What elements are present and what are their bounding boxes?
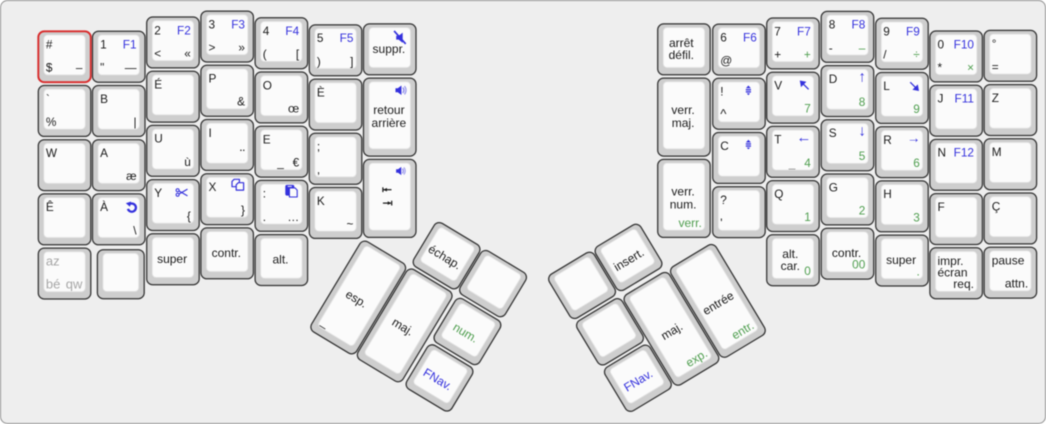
svg-text:6: 6 xyxy=(913,156,920,170)
svg-text:O: O xyxy=(263,78,272,92)
svg-text:00: 00 xyxy=(852,258,866,272)
svg-text:×: × xyxy=(967,60,974,74)
svg-text:—: — xyxy=(125,61,137,75)
svg-text:F: F xyxy=(938,200,945,214)
svg-text:alt.: alt. xyxy=(272,253,288,267)
svg-text:7: 7 xyxy=(774,24,781,38)
svg-text:S: S xyxy=(829,126,837,140)
svg-text:G: G xyxy=(829,180,838,194)
svg-text:verr.: verr. xyxy=(671,103,694,117)
svg-text:%: % xyxy=(46,115,57,129)
svg-text:1: 1 xyxy=(804,210,811,224)
svg-text:«: « xyxy=(184,46,191,60)
svg-text:super: super xyxy=(157,252,187,266)
svg-text:N: N xyxy=(938,146,947,160)
svg-text:_: _ xyxy=(788,156,796,170)
svg-text:bé: bé xyxy=(46,277,60,292)
svg-text:…: … xyxy=(287,210,299,224)
svg-text:F3: F3 xyxy=(231,17,245,31)
svg-text:.: . xyxy=(917,265,920,279)
svg-text:F7: F7 xyxy=(797,24,811,38)
svg-text:(: ( xyxy=(263,47,267,61)
svg-text:←: ← xyxy=(796,129,811,146)
svg-text:R: R xyxy=(883,133,892,147)
svg-text:*: * xyxy=(938,60,943,74)
svg-text:,: , xyxy=(317,163,320,177)
svg-text:F5: F5 xyxy=(340,31,354,45)
svg-text:M: M xyxy=(992,145,1002,159)
svg-text:=: = xyxy=(992,60,999,74)
svg-text:F1: F1 xyxy=(123,38,137,52)
svg-text:ù: ù xyxy=(184,155,191,169)
svg-text:F2: F2 xyxy=(177,23,191,37)
svg-text:#: # xyxy=(46,38,53,52)
svg-text:P: P xyxy=(209,72,217,86)
svg-text:}: } xyxy=(241,203,245,217)
svg-text:F9: F9 xyxy=(906,25,920,39)
svg-text:!: ! xyxy=(720,85,723,99)
svg-text:7: 7 xyxy=(804,102,811,116)
svg-text:3: 3 xyxy=(913,210,920,224)
svg-text:>: > xyxy=(209,41,216,55)
svg-text:B: B xyxy=(100,92,108,106)
svg-text:{: { xyxy=(187,209,191,223)
svg-text:5: 5 xyxy=(859,149,866,163)
svg-text:5: 5 xyxy=(317,31,324,45)
svg-text:2: 2 xyxy=(154,23,161,37)
svg-text:I: I xyxy=(209,126,212,140)
svg-text:F8: F8 xyxy=(852,18,866,32)
svg-text:-: - xyxy=(829,41,833,55)
svg-text:1: 1 xyxy=(100,38,107,52)
svg-text:V: V xyxy=(774,79,782,93)
svg-text:€: € xyxy=(293,156,300,170)
svg-text::: : xyxy=(263,187,266,201)
svg-text:À: À xyxy=(100,200,108,214)
svg-text:3: 3 xyxy=(209,17,216,31)
svg-text:F10: F10 xyxy=(954,37,975,51)
svg-text:F4: F4 xyxy=(285,24,299,38)
svg-text:^: ^ xyxy=(720,107,727,122)
svg-text:?: ? xyxy=(720,193,727,207)
svg-text:2: 2 xyxy=(859,203,866,217)
svg-text:÷: ÷ xyxy=(913,48,920,62)
svg-text:æ: æ xyxy=(126,169,137,183)
svg-text:8: 8 xyxy=(859,95,866,109)
svg-text:suppr.: suppr. xyxy=(373,42,406,56)
svg-text:super: super xyxy=(886,253,916,267)
svg-text:<: < xyxy=(154,46,161,60)
svg-text:A: A xyxy=(100,146,108,160)
svg-text:': ' xyxy=(720,216,722,230)
svg-text:@: @ xyxy=(720,54,732,68)
svg-text:↓: ↓ xyxy=(858,123,866,140)
svg-text:E: E xyxy=(263,133,271,147)
svg-text:W: W xyxy=(46,146,58,160)
svg-text:œ: œ xyxy=(288,101,299,115)
svg-text:num.: num. xyxy=(670,197,697,211)
svg-text:verr.: verr. xyxy=(671,184,694,198)
svg-text:0: 0 xyxy=(804,264,811,278)
svg-text:D: D xyxy=(829,72,838,86)
svg-text:9: 9 xyxy=(913,102,920,116)
svg-text:~: ~ xyxy=(347,217,354,231)
svg-text:–: – xyxy=(859,41,866,55)
svg-text:]: ] xyxy=(350,54,353,68)
svg-text:°: ° xyxy=(992,37,997,51)
svg-text:Ê: Ê xyxy=(46,200,54,214)
svg-text:Y: Y xyxy=(154,186,162,200)
svg-text:9: 9 xyxy=(883,25,890,39)
svg-text:T: T xyxy=(774,133,781,147)
svg-text:;: ; xyxy=(317,140,320,154)
svg-text:+: + xyxy=(774,47,781,61)
svg-text:|: | xyxy=(134,115,137,129)
svg-text:É: É xyxy=(154,78,162,92)
svg-text:J: J xyxy=(938,92,944,106)
svg-text:8: 8 xyxy=(829,18,836,32)
svg-text:L: L xyxy=(883,79,890,93)
svg-text:X: X xyxy=(209,180,217,194)
svg-text:4: 4 xyxy=(263,24,270,38)
svg-text:→: → xyxy=(907,130,921,145)
svg-text:pause: pause xyxy=(992,254,1025,268)
svg-text:retour: retour xyxy=(373,103,404,117)
svg-text:.: . xyxy=(263,210,266,224)
svg-text:_: _ xyxy=(276,156,284,170)
svg-text:F6: F6 xyxy=(743,30,757,44)
svg-text:È: È xyxy=(317,85,325,99)
svg-text:Z: Z xyxy=(992,91,999,105)
svg-text:»: » xyxy=(238,41,245,55)
svg-text:az: az xyxy=(46,253,60,268)
svg-text:–: – xyxy=(76,61,83,75)
svg-text:H: H xyxy=(883,187,892,201)
svg-text:): ) xyxy=(317,54,321,68)
svg-text:req.: req. xyxy=(953,277,974,291)
svg-text:contr.: contr. xyxy=(212,246,241,260)
svg-text:Ç: Ç xyxy=(992,199,1001,213)
svg-text:arrière: arrière xyxy=(372,116,407,130)
svg-text:6: 6 xyxy=(720,30,727,44)
svg-text:`: ` xyxy=(46,92,50,106)
svg-text:qw: qw xyxy=(66,277,83,292)
svg-text:Q: Q xyxy=(774,187,783,201)
svg-text:U: U xyxy=(154,132,163,146)
svg-text:maj.: maj. xyxy=(672,116,695,130)
svg-text:défil.: défil. xyxy=(669,48,694,62)
svg-text:$: $ xyxy=(46,61,53,75)
svg-text:": " xyxy=(100,61,104,75)
svg-text:&: & xyxy=(237,95,245,109)
svg-text:attn.: attn. xyxy=(1005,277,1028,291)
svg-text:↑: ↑ xyxy=(858,68,866,85)
svg-text:0: 0 xyxy=(938,37,945,51)
svg-text:verr.: verr. xyxy=(678,216,701,230)
svg-text:4: 4 xyxy=(804,156,811,170)
svg-text:+: + xyxy=(804,47,811,61)
svg-text:F12: F12 xyxy=(954,146,974,160)
svg-text:¨: ¨ xyxy=(240,148,245,164)
svg-text:C: C xyxy=(720,139,729,153)
svg-text:car.: car. xyxy=(781,259,800,273)
svg-text:K: K xyxy=(317,194,325,208)
svg-text:F11: F11 xyxy=(955,92,974,106)
